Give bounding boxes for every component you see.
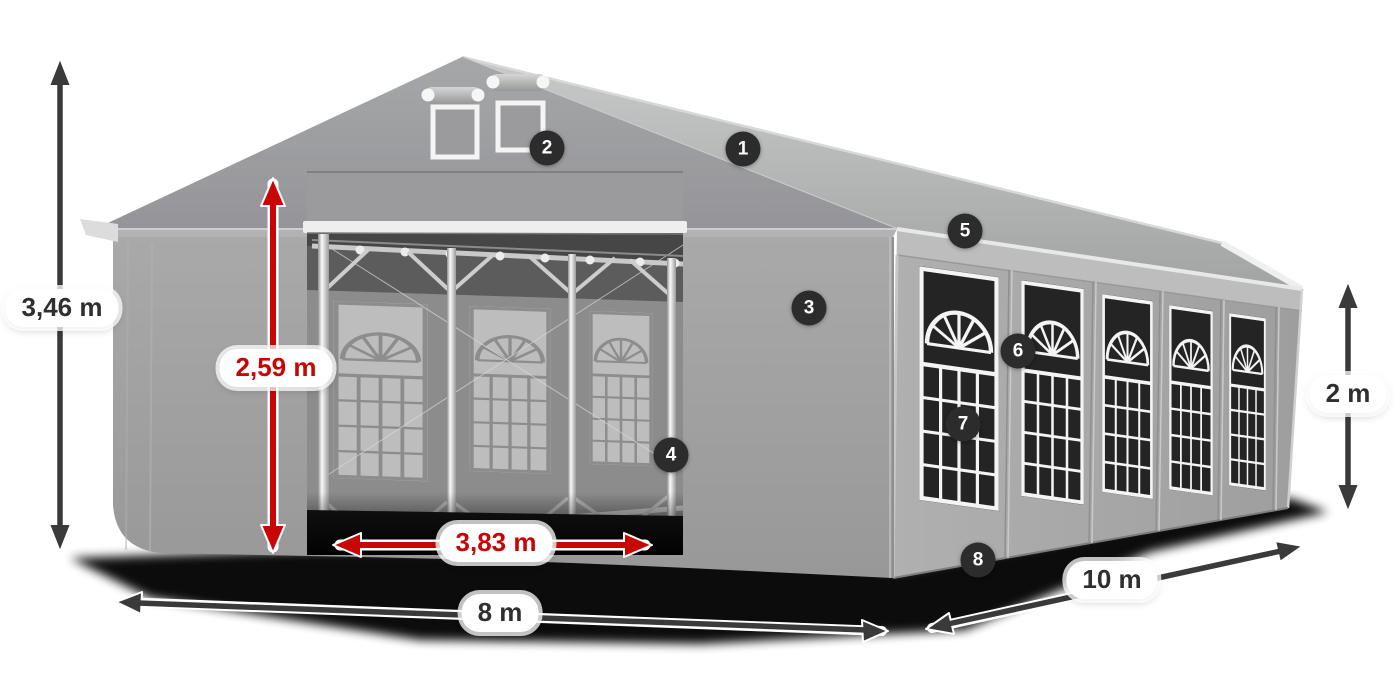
feature-marker-6[interactable]: 6 (1001, 334, 1036, 369)
interior-window-3 (589, 311, 653, 466)
side-window-5 (1229, 313, 1266, 491)
dimension-label-total-height: 3,46 m (6, 289, 119, 327)
side-window-2 (1021, 280, 1084, 505)
interior-window-2 (469, 306, 551, 474)
feature-marker-7[interactable]: 7 (946, 407, 981, 442)
tent-diagram: 3,46 m 2,59 m 3,83 m 8 m 10 m 2 m 1 2 3 … (0, 0, 1400, 700)
entrance-interior (307, 232, 683, 555)
feature-marker-2[interactable]: 2 (530, 131, 565, 166)
interior-window-1 (333, 301, 428, 481)
side-window-1 (919, 266, 999, 511)
dimension-label-entrance-height: 2,59 m (220, 349, 333, 387)
feature-marker-5[interactable]: 5 (948, 214, 983, 249)
dimension-label-side-length: 10 m (1066, 561, 1157, 599)
feature-marker-4[interactable]: 4 (654, 438, 689, 473)
dimension-label-front-width: 8 m (462, 594, 539, 632)
feature-marker-8[interactable]: 8 (961, 543, 996, 578)
feature-marker-1[interactable]: 1 (726, 132, 761, 167)
dimension-label-entrance-width: 3,83 m (440, 524, 553, 562)
entrance (303, 172, 687, 555)
tent-illustration (0, 0, 1400, 700)
side-window-4 (1169, 305, 1213, 496)
dimension-label-wall-height: 2 m (1310, 375, 1387, 413)
feature-marker-3[interactable]: 3 (792, 291, 827, 326)
side-window-3 (1102, 294, 1153, 499)
